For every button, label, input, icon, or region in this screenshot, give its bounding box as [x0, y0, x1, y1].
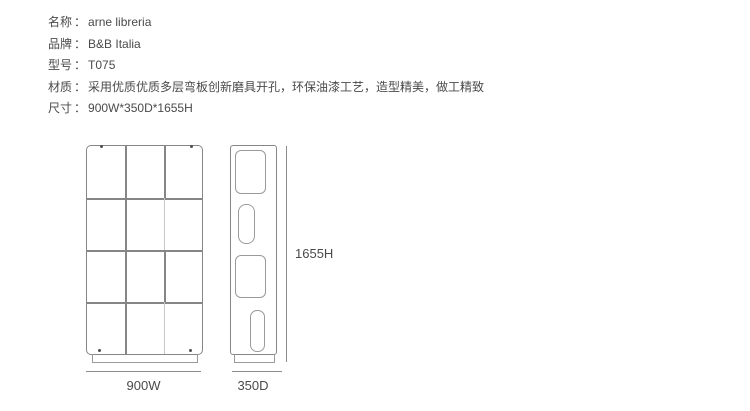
divider-line [164, 146, 166, 198]
spec-colon: ： [72, 101, 88, 115]
spec-block: 名称：arne libreria 品牌：B&B Italia 型号：T075 材… [48, 12, 484, 120]
width-dimension-line [86, 371, 201, 372]
height-dimension-line [286, 146, 287, 362]
side-cutout [250, 310, 265, 352]
spec-row-name: 名称：arne libreria [48, 12, 484, 34]
spec-colon: ： [72, 37, 88, 51]
spec-label: 品牌 [48, 37, 72, 51]
shelf-line [87, 250, 202, 252]
shelf-line [87, 302, 202, 304]
side-cutout [235, 150, 266, 194]
front-view-plinth [92, 354, 198, 363]
height-dimension-label: 1655H [295, 246, 333, 261]
side-cutout [235, 255, 266, 298]
spec-row-material: 材质：采用优质优质多层弯板创新磨具开孔，环保油漆工艺，造型精美，做工精致 [48, 77, 484, 99]
fitting-dot [189, 349, 192, 352]
spec-label: 材质 [48, 80, 72, 94]
width-dimension-label: 900W [86, 378, 201, 393]
spec-value: 采用优质优质多层弯板创新磨具开孔，环保油漆工艺，造型精美，做工精致 [88, 80, 484, 94]
side-view-drawing [230, 145, 277, 355]
divider-line [125, 146, 127, 354]
spec-colon: ： [72, 15, 88, 29]
spec-value: 900W*350D*1655H [88, 101, 193, 115]
depth-dimension-line [232, 371, 282, 372]
fitting-dot [100, 145, 103, 148]
fitting-dot [190, 145, 193, 148]
spec-row-size: 尺寸：900W*350D*1655H [48, 98, 484, 120]
fitting-dot [98, 349, 101, 352]
divider-line [164, 198, 165, 250]
side-cutout [238, 204, 255, 244]
side-view-plinth [234, 354, 275, 363]
spec-value: arne libreria [88, 15, 151, 29]
spec-label: 型号 [48, 58, 72, 72]
front-view-drawing [86, 145, 203, 355]
spec-label: 名称 [48, 15, 72, 29]
spec-label: 尺寸 [48, 101, 72, 115]
spec-row-brand: 品牌：B&B Italia [48, 34, 484, 56]
divider-line [164, 302, 165, 354]
divider-line [164, 250, 166, 302]
product-spec-page: 名称：arne libreria 品牌：B&B Italia 型号：T075 材… [0, 0, 750, 411]
depth-dimension-label: 350D [228, 378, 278, 393]
spec-colon: ： [72, 80, 88, 94]
shelf-line [87, 198, 202, 200]
spec-value: B&B Italia [88, 37, 141, 51]
spec-value: T075 [88, 58, 115, 72]
spec-row-model: 型号：T075 [48, 55, 484, 77]
spec-colon: ： [72, 58, 88, 72]
